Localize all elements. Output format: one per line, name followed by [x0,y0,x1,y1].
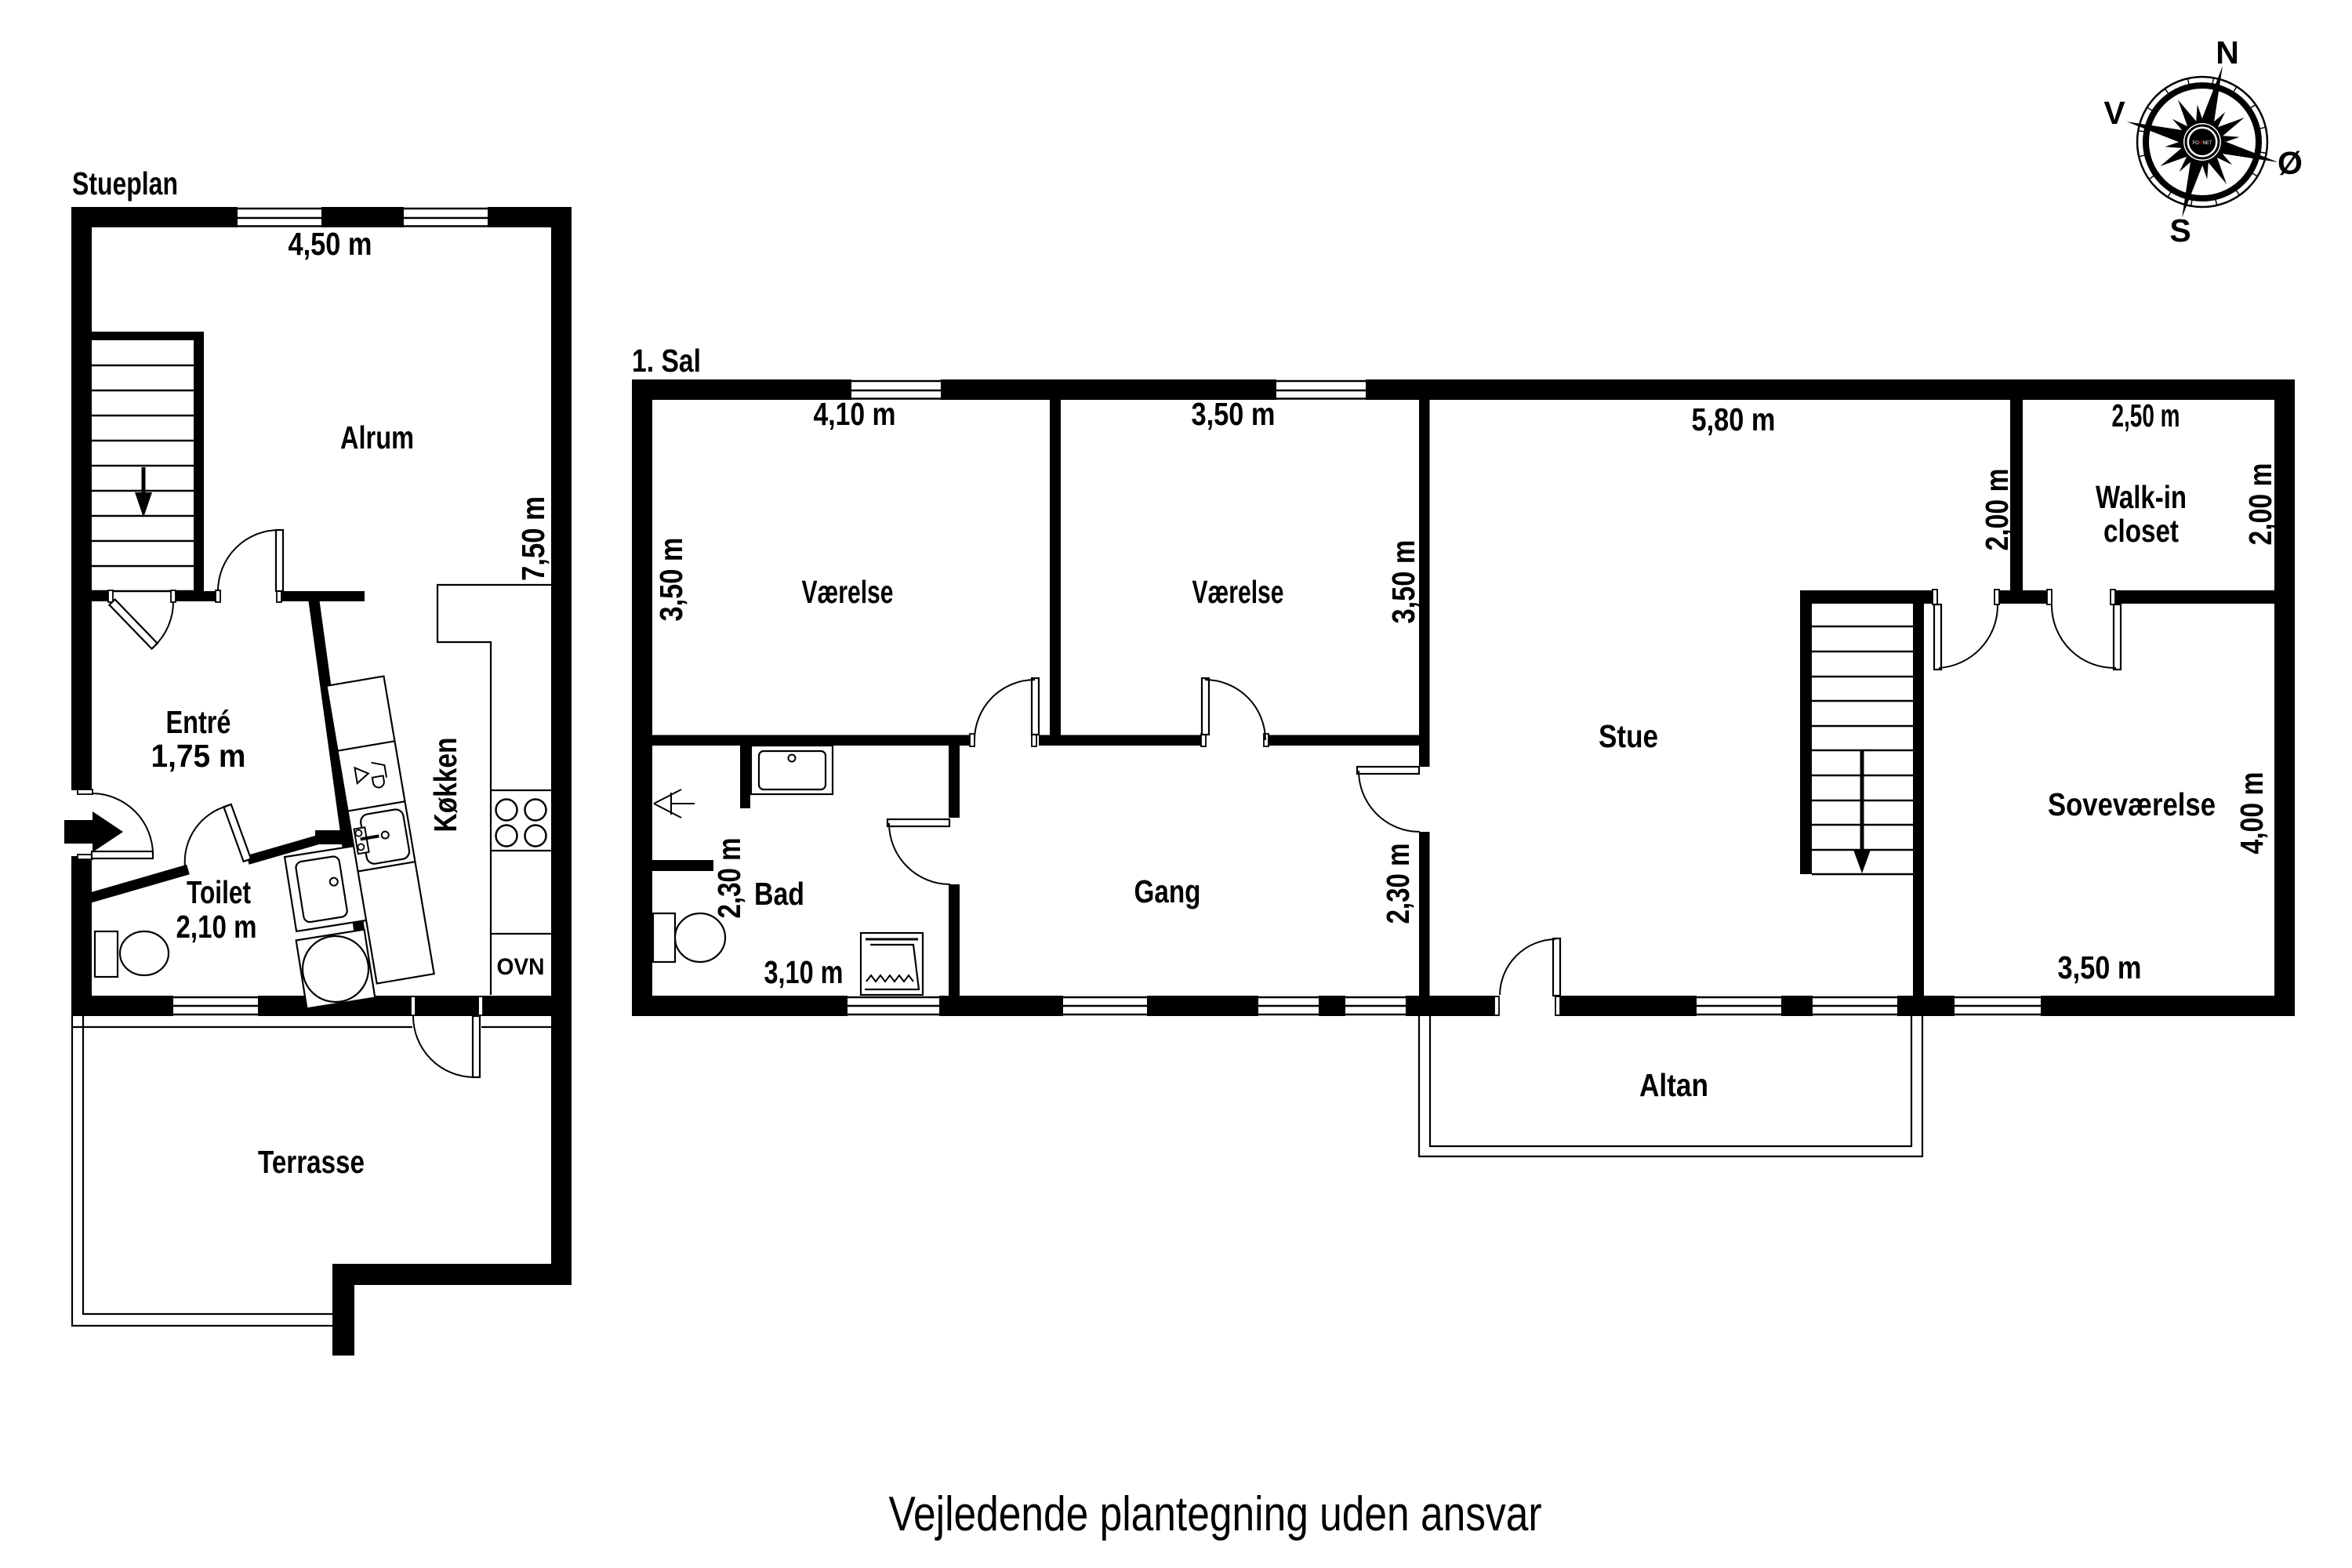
svg-text:Terrasse: Terrasse [258,1144,365,1180]
svg-text:Værelse: Værelse [802,574,894,610]
svg-text:1,75 m: 1,75 m [151,738,246,774]
svg-text:2,00 m: 2,00 m [2242,463,2278,546]
svg-text:V: V [2103,95,2125,131]
svg-text:3,10 m: 3,10 m [764,954,844,990]
svg-text:3,50 m: 3,50 m [1192,396,1276,432]
svg-text:2,30 m: 2,30 m [1380,844,1416,924]
svg-text:Entré: Entré [166,704,231,740]
svg-text:Værelse: Værelse [1192,574,1284,610]
svg-text:Altan: Altan [1639,1067,1708,1103]
svg-text:4,50 m: 4,50 m [289,226,372,262]
svg-text:3,50 m: 3,50 m [1385,540,1421,624]
svg-text:Køkken: Køkken [427,738,463,833]
svg-text:Walk-in: Walk-in [2096,479,2187,515]
svg-text:S: S [2169,212,2190,249]
svg-text:Bad: Bad [754,876,804,912]
svg-text:Toilet: Toilet [187,874,251,910]
svg-text:Gang: Gang [1134,873,1201,909]
svg-text:2,30 m: 2,30 m [711,838,747,919]
svg-text:closet: closet [2103,513,2179,549]
svg-text:Stueplan: Stueplan [72,165,178,201]
svg-text:1. Sal: 1. Sal [632,343,701,379]
svg-text:2,00 m: 2,00 m [1979,469,2015,551]
svg-text:Ø: Ø [2278,145,2303,181]
svg-text:7,50 m: 7,50 m [515,496,551,581]
svg-text:N: N [2216,34,2239,71]
svg-text:4,10 m: 4,10 m [814,396,896,432]
svg-text:3,50 m: 3,50 m [2058,949,2142,985]
svg-text:4,00 m: 4,00 m [2234,772,2270,855]
svg-text:Vejledende plantegning uden an: Vejledende plantegning uden ansvar [889,1487,1542,1541]
svg-text:FOONET: FOONET [2192,141,2212,146]
svg-text:Soveværelse: Soveværelse [2048,786,2216,822]
svg-text:5,80 m: 5,80 m [1692,401,1776,437]
svg-text:3,50 m: 3,50 m [653,538,689,622]
svg-text:2,10 m: 2,10 m [176,909,257,945]
svg-text:Alrum: Alrum [340,419,414,456]
svg-text:OVN: OVN [497,954,545,980]
svg-text:Stue: Stue [1599,718,1658,754]
svg-text:2,50 m: 2,50 m [2112,397,2180,434]
